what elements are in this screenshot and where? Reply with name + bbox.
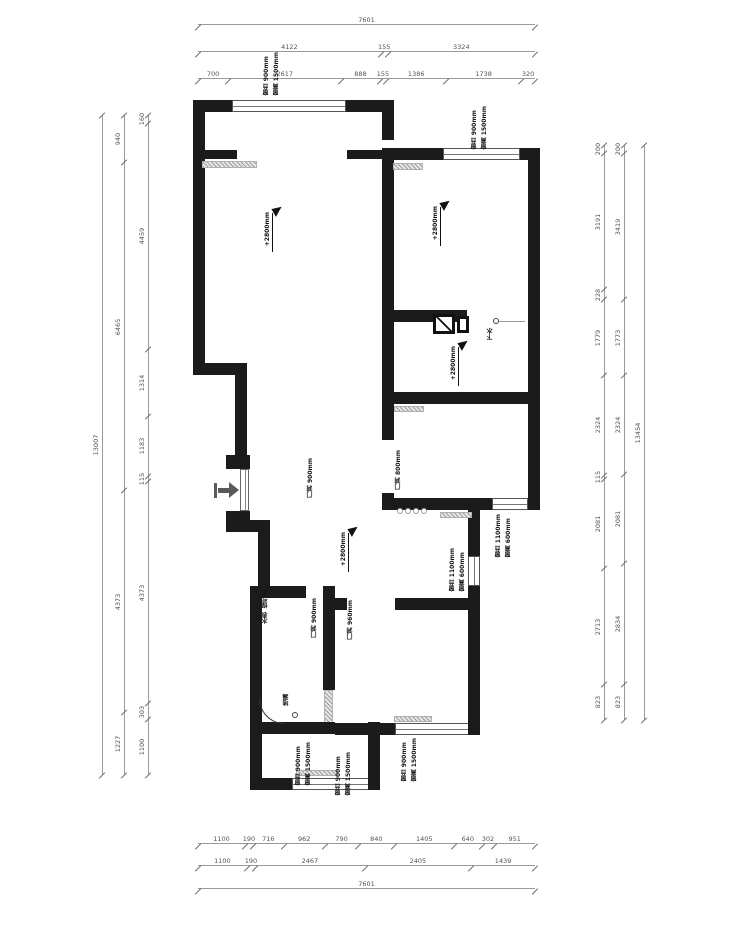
dimension-segment: 2834 (616, 564, 632, 685)
elevation-marker: +2800mm (448, 340, 464, 388)
dim-bottom-total: 7601 (198, 876, 535, 892)
dimension-segment: 1227 (116, 713, 132, 775)
dimension-value: 302 (482, 836, 494, 843)
elevation-label: +2800mm (265, 212, 271, 246)
dimension-segment: 1773 (616, 300, 632, 376)
dimension-value: 1405 (416, 836, 433, 843)
wall (382, 392, 540, 404)
flag-icon (347, 524, 360, 537)
dimension-value: 3324 (453, 44, 470, 51)
duct-box-icon (457, 316, 469, 333)
wall (382, 100, 394, 140)
dimension-value: 716 (262, 836, 274, 843)
dimension-value: 1439 (495, 858, 512, 865)
dimension-segment: 6465 (116, 163, 132, 491)
flue-box-icon (433, 314, 455, 334)
elevation-label: +2800mm (341, 532, 347, 566)
dimension-segment: 1100 (198, 853, 247, 869)
wall (226, 511, 250, 532)
elevation-marker: +2800mm (262, 206, 278, 254)
beam (347, 150, 385, 159)
dimension-value: 6465 (115, 318, 122, 335)
dimension-segment: 951 (494, 831, 535, 847)
dimension-segment: 2324 (616, 375, 632, 474)
window-sill-label: 窗台 900mm (402, 738, 409, 781)
dimension-value: 823 (595, 696, 602, 708)
beam-hatch (393, 163, 423, 170)
water-meter-label: 水表 (263, 612, 270, 624)
dim-bottom-mid: 1100190246724051439 (198, 853, 535, 869)
wall (226, 455, 250, 469)
dimension-value: 4122 (281, 44, 298, 51)
dimension-segment: 13454 (636, 145, 652, 720)
window-head-label: 窗高 1500mm (412, 738, 419, 781)
dim-top-inner: 700261788815513861738320 (198, 66, 535, 82)
floor-drain-icon (292, 712, 298, 718)
dimension-segment: 2405 (365, 853, 472, 869)
gas-meter-label: 煤气表 (263, 590, 270, 608)
dimension-segment: 1100 (140, 719, 156, 775)
wall (468, 598, 480, 735)
entry-arrow-icon (214, 482, 240, 500)
dimension-segment: 302 (482, 831, 495, 847)
dim-right-total: 13454 (636, 145, 652, 720)
dimension-segment: 1738 (446, 66, 521, 82)
dimension-value: 1738 (475, 71, 492, 78)
dimension-value: 13454 (635, 422, 642, 443)
floor-drain-label: 地漏 (284, 694, 291, 706)
dimension-segment: 4373 (116, 491, 132, 713)
dimension-segment: 1386 (386, 66, 446, 82)
dimension-value: 3419 (615, 218, 622, 235)
dimension-value: 3191 (595, 213, 602, 230)
window-sill-label: 窗台 900mm (336, 752, 343, 795)
wall (193, 100, 205, 375)
dimension-value: 2405 (410, 858, 427, 865)
wall (393, 148, 443, 160)
dimension-segment: 4459 (140, 123, 156, 349)
dimension-value: 2324 (595, 417, 602, 434)
dimension-segment: 2081 (596, 480, 612, 569)
dimension-segment: 190 (245, 831, 253, 847)
dimension-value: 2467 (302, 858, 319, 865)
dimension-segment: 3191 (596, 154, 612, 290)
window-sill-label: 窗台 1100mm (496, 514, 503, 557)
dimension-value: 7601 (358, 17, 375, 24)
door-opening-label: 门洞 800mm (396, 450, 403, 489)
dimension-segment: 1405 (394, 831, 454, 847)
wall (323, 586, 335, 690)
window-head-label: 窗高 1500mm (482, 106, 489, 149)
dimension-value: 640 (462, 836, 474, 843)
wall (250, 778, 292, 790)
dimension-value: 7601 (358, 881, 375, 888)
dimension-value: 2081 (615, 511, 622, 528)
dimension-segment: 888 (341, 66, 379, 82)
dimension-segment: 2467 (255, 853, 364, 869)
dim-right-inner: 20031912281779232411520812713823 (596, 145, 612, 720)
dimension-value: 1773 (615, 329, 622, 346)
window-head-label: 窗高 600mm (506, 514, 513, 557)
beam-hatch (440, 512, 472, 518)
dimension-value: 840 (370, 836, 382, 843)
beam-hatch (394, 406, 424, 412)
dimension-value: 4459 (139, 228, 146, 245)
wall (250, 586, 262, 790)
wall (335, 723, 395, 735)
elevation-label: +2800mm (433, 206, 439, 240)
door-opening-label: 门洞 900mm (308, 458, 315, 497)
dimension-segment: 940 (116, 115, 132, 163)
dimension-value: 1227 (115, 736, 122, 753)
window-head-label: 窗高 1500mm (346, 752, 353, 795)
dimension-segment: 2617 (228, 66, 341, 82)
dimension-segment: 320 (521, 66, 535, 82)
dimension-segment: 2324 (596, 376, 612, 475)
dimension-segment: 2713 (596, 569, 612, 685)
dimension-segment: 7601 (198, 12, 535, 28)
window-sill-label: 窗台 900mm (296, 742, 303, 785)
dimension-value: 951 (509, 836, 521, 843)
leader-line (499, 321, 525, 322)
window-head-label: 窗高 600mm (460, 548, 467, 591)
dim-left-mid: 940646543731227 (116, 115, 132, 775)
window-label-pair: 窗台 900mm 窗高 1500mm (336, 752, 352, 795)
window (468, 556, 480, 586)
dimension-segment: 640 (454, 831, 481, 847)
dimension-value: 4373 (115, 593, 122, 610)
floor-plan-sheet: 7601 41221553324 70026178881551386173832… (0, 0, 750, 938)
dimension-segment: 823 (616, 685, 632, 720)
dimension-segment: 790 (325, 831, 359, 847)
door-opening-label: 门洞 960mm (348, 600, 355, 639)
dimension-value: 823 (615, 696, 622, 708)
window-sill-label: 窗台 1100mm (450, 548, 457, 591)
wall (468, 586, 480, 598)
dimension-segment: 716 (253, 831, 284, 847)
dimension-segment: 2081 (616, 475, 632, 564)
dimension-value: 962 (298, 836, 310, 843)
dim-top-total: 7601 (198, 12, 535, 28)
door-swing-arc (259, 698, 284, 724)
dimension-segment: 155 (381, 39, 388, 55)
dimension-value: 303 (139, 705, 146, 717)
dimension-value: 1314 (139, 374, 146, 391)
window (395, 723, 475, 735)
dimension-value: 4373 (139, 585, 146, 602)
dimension-segment: 7601 (198, 876, 535, 892)
dimension-value: 320 (522, 71, 534, 78)
dimension-segment: 823 (596, 685, 612, 720)
dimension-value: 2324 (615, 417, 622, 434)
window-label-pair: 窗台 900mm 窗高 1500mm (264, 52, 280, 95)
dimension-value: 700 (207, 71, 219, 78)
window-label-pair: 窗台 900mm 窗高 1500mm (472, 106, 488, 149)
door-opening-label: 门洞 900mm (312, 598, 319, 637)
dimension-segment: 1100 (198, 831, 245, 847)
drain-label: 下水 (488, 328, 495, 340)
dimension-value: 790 (335, 836, 347, 843)
wall (395, 598, 480, 610)
wall (193, 363, 247, 375)
dimension-segment: 1183 (140, 416, 156, 476)
beam-hatch (202, 161, 257, 168)
elevation-marker: +2800mm (338, 526, 354, 574)
dimension-segment: 1439 (471, 853, 535, 869)
dimension-segment: 190 (247, 853, 255, 869)
dimension-value: 888 (354, 71, 366, 78)
dimension-value: 1779 (595, 329, 602, 346)
elevation-marker: +2800mm (430, 200, 446, 248)
wall (382, 316, 394, 440)
window (492, 498, 528, 510)
dimension-segment: 4122 (198, 39, 381, 55)
dimension-value: 13007 (93, 435, 100, 456)
radiator-icon (397, 508, 427, 514)
dimension-value: 1100 (214, 858, 231, 865)
dimension-segment: 3419 (616, 154, 632, 300)
window-head-label: 窗高 1500mm (274, 52, 281, 95)
dim-left-total: 13007 (94, 115, 110, 775)
dimension-value: 1100 (213, 836, 230, 843)
window (443, 148, 520, 160)
window-sill-label: 窗台 900mm (264, 52, 271, 95)
flag-icon (439, 198, 452, 211)
dimension-value: 1100 (139, 739, 146, 756)
window-label-pair: 窗台 1100mm 窗高 600mm (496, 514, 512, 557)
dimension-value: 1386 (408, 71, 425, 78)
elevation-label: +2800mm (451, 346, 457, 380)
dim-right-mid: 20034191773232420812834823 (616, 145, 632, 720)
dim-top-mid: 41221553324 (198, 39, 535, 55)
window-label-pair: 窗台 1100mm 窗高 600mm (450, 548, 466, 591)
dimension-value: 2081 (595, 516, 602, 533)
dimension-segment: 700 (198, 66, 228, 82)
dimension-segment: 3324 (388, 39, 535, 55)
wall (382, 148, 394, 316)
wall (335, 598, 347, 610)
window-sill-label: 窗台 900mm (472, 106, 479, 149)
dimension-value: 940 (115, 133, 122, 145)
dimension-segment: 13007 (94, 115, 110, 775)
dimension-segment: 962 (284, 831, 325, 847)
flag-icon (457, 338, 470, 351)
dim-left-inner: 16044591314118311543733031100 (140, 115, 156, 775)
dimension-value: 2834 (615, 616, 622, 633)
beam-hatch (394, 716, 432, 722)
window-head-label: 窗高 1500mm (306, 742, 313, 785)
entry-door-leaf (240, 469, 249, 511)
dim-bottom-inner: 11001907169627908401405640302951 (198, 831, 535, 847)
flag-icon (271, 204, 284, 217)
dimension-value: 2713 (595, 619, 602, 636)
window (232, 100, 346, 112)
window-label-pair: 窗台 900mm 窗高 1500mm (402, 738, 418, 781)
wall (258, 520, 270, 594)
dimension-segment: 1314 (140, 349, 156, 416)
dimension-segment: 4373 (140, 482, 156, 704)
wall (250, 722, 335, 734)
beam (202, 150, 237, 159)
dimension-value: 1183 (139, 438, 146, 455)
wall (235, 375, 247, 467)
wall (528, 148, 540, 510)
window-label-pair: 窗台 900mm 窗高 1500mm (296, 742, 312, 785)
dimension-segment: 840 (358, 831, 394, 847)
dimension-segment: 1779 (596, 300, 612, 376)
